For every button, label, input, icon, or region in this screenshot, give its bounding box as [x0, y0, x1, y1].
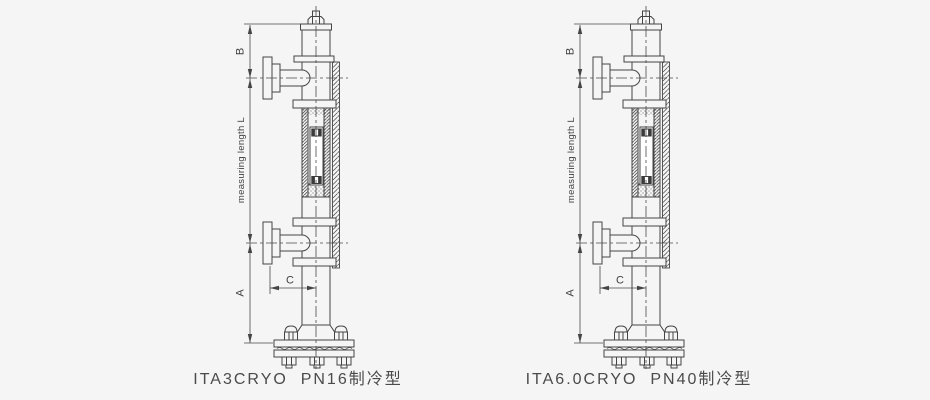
- level-gauge-drawing: B measuring length L A C: [0, 0, 930, 400]
- caption-ita6cryo: ITA6.0CRYO PN40制冷型: [469, 369, 809, 391]
- caption-ita3cryo: ITA3CRYO PN16制冷型: [128, 369, 468, 391]
- gauge-diagram-2: [565, 6, 685, 369]
- gauge-diagram-1: [235, 6, 355, 369]
- figure-canvas: B measuring length L A C ITA3CRYO PN16制冷…: [0, 0, 930, 400]
